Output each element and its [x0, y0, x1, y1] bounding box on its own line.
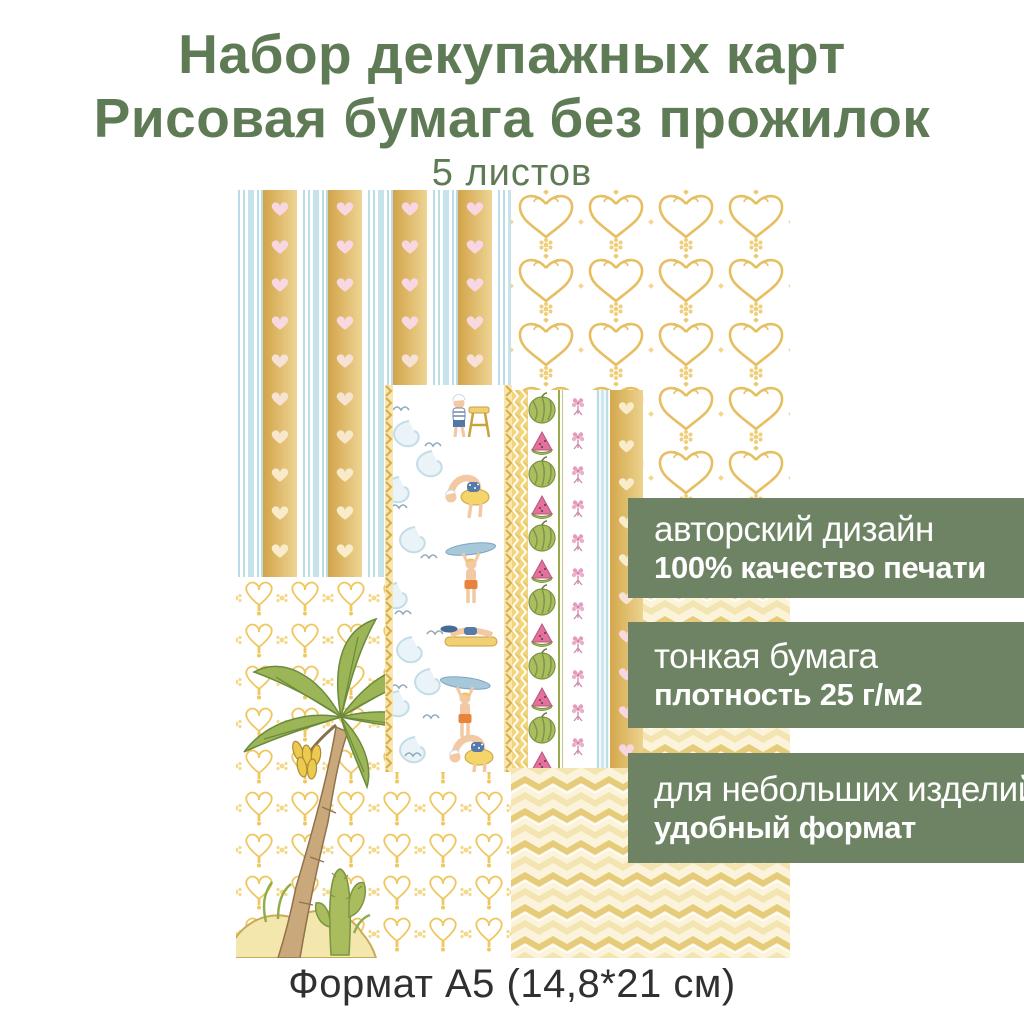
page-title-line2: Рисовая бумага без прожилок [0, 86, 1024, 150]
badge-text-bold: 100% качество печати [654, 552, 1024, 585]
feature-badge-design: авторский дизайн 100% качество печати [628, 498, 1024, 598]
page-title-line1: Набор декупажных карт [0, 22, 1024, 86]
product-promo-image: Набор декупажных карт Рисовая бумага без… [0, 0, 1024, 1021]
strip-watermelons [512, 390, 643, 768]
strip-beach-ladies [385, 385, 512, 772]
badge-text: авторский дизайн [654, 512, 1024, 549]
badge-text-bold: плотность 25 г/м2 [654, 679, 1024, 712]
format-label: Формат А5 (14,8*21 см) [0, 962, 1024, 1007]
sheet-count-label: 5 листов [0, 152, 1024, 195]
badge-text-bold: удобный формат [654, 812, 1024, 845]
feature-badge-paper: тонкая бумага плотность 25 г/м2 [628, 622, 1024, 728]
feature-badge-format: для небольших изделий удобный формат [628, 753, 1024, 863]
badge-text: тонкая бумага [654, 639, 1024, 676]
badge-text: для небольших изделий [654, 772, 1024, 809]
